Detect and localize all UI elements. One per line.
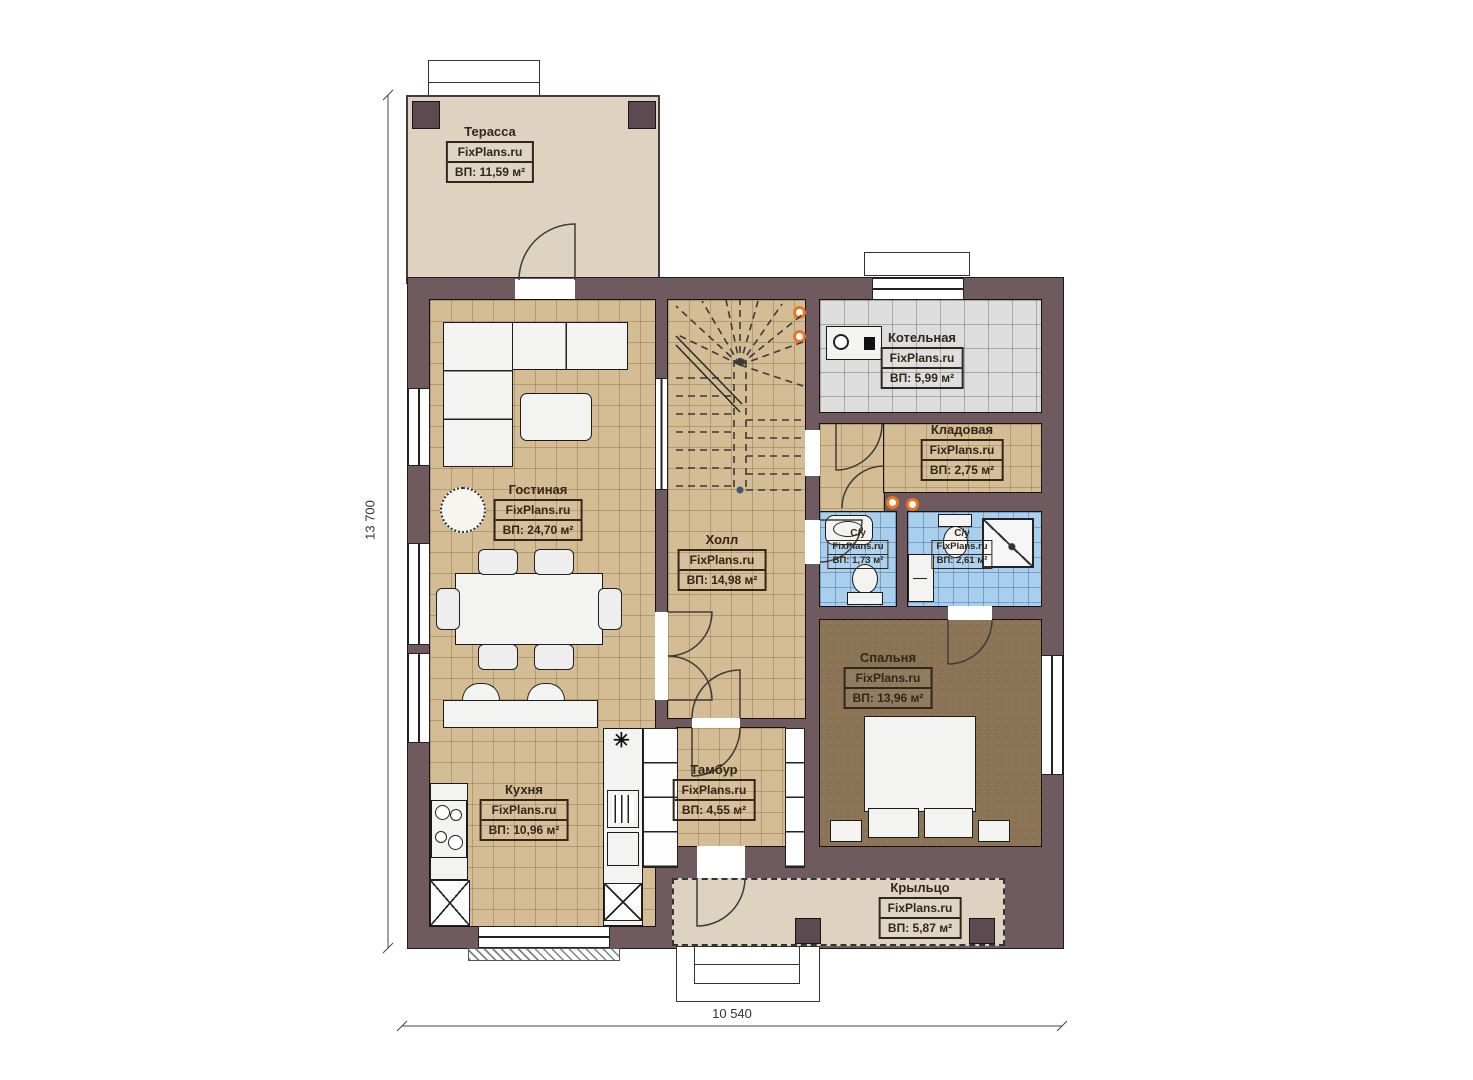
toilet-tank xyxy=(847,592,883,605)
dining-window-left xyxy=(408,543,430,645)
room-label-terrace: Терасса FixPlans.ru ВП: 11,59 м² xyxy=(446,124,534,183)
appliance-box xyxy=(607,832,639,866)
kitchen-window-sill xyxy=(468,948,620,961)
room-name: С/у xyxy=(931,528,992,539)
cooktop-symbol-icon: ✳ xyxy=(613,728,630,753)
stove-burner xyxy=(448,835,463,850)
room-area: ВП: 1,73 м² xyxy=(828,554,887,568)
room-area: ВП: 2,75 м² xyxy=(923,459,1002,479)
room-label-bedroom: Спальня FixPlans.ru ВП: 13,96 м² xyxy=(844,650,933,709)
lobby-floor xyxy=(820,424,884,512)
terrace-door-opening xyxy=(515,279,575,299)
room-label-bath2: С/у FixPlans.ru ВП: 2,61 м² xyxy=(931,528,992,569)
room-name: Гостиная xyxy=(494,482,583,497)
sofa-vertical xyxy=(443,322,513,467)
floor-plan: ✳ xyxy=(0,0,1473,1080)
chimney-vent-icon xyxy=(906,498,919,511)
room-name: С/у xyxy=(827,528,888,539)
boiler-unit xyxy=(826,326,882,360)
stove-burner xyxy=(450,809,462,821)
dining-chair xyxy=(436,588,460,630)
room-label-porch: Крыльцо FixPlans.ru ВП: 5,87 м² xyxy=(879,880,962,939)
nightstand xyxy=(830,820,862,842)
room-area: ВП: 24,70 м² xyxy=(496,519,581,539)
corner-cabinet xyxy=(430,880,470,926)
chimney-vent-icon xyxy=(793,330,806,343)
watermark: FixPlans.ru xyxy=(932,541,991,554)
watermark: FixPlans.ru xyxy=(923,441,1002,459)
plant xyxy=(440,487,486,533)
nightstand xyxy=(978,820,1010,842)
lobby-door-opening xyxy=(805,430,820,476)
porch-post xyxy=(795,918,821,944)
room-area: ВП: 4,55 м² xyxy=(675,799,754,819)
watermark: FixPlans.ru xyxy=(846,669,931,687)
water-heater xyxy=(908,554,934,602)
bath1-door-opening xyxy=(805,520,820,564)
dining-table xyxy=(455,573,603,645)
bed xyxy=(864,716,976,812)
double-door-opening xyxy=(655,612,668,700)
living-hall-opening xyxy=(655,378,668,490)
dining-chair xyxy=(534,644,574,670)
room-name: Спальня xyxy=(844,650,933,665)
island-counter xyxy=(443,700,598,728)
boiler-window-sill xyxy=(864,252,970,276)
pillow xyxy=(868,808,919,838)
boiler-window xyxy=(872,278,964,300)
porch-step xyxy=(694,946,800,965)
room-area: ВП: 11,59 м² xyxy=(448,161,532,181)
room-label-boiler: Котельная FixPlans.ru ВП: 5,99 м² xyxy=(881,330,964,389)
room-label-vestibule: Тамбур FixPlans.ru ВП: 4,55 м² xyxy=(673,762,756,821)
porch-post xyxy=(969,918,995,944)
watermark: FixPlans.ru xyxy=(680,551,765,569)
room-area: ВП: 13,96 м² xyxy=(846,687,931,707)
watermark: FixPlans.ru xyxy=(496,501,581,519)
room-name: Холл xyxy=(678,532,767,547)
oven xyxy=(607,790,639,828)
dining-chair xyxy=(478,644,518,670)
living-window-left xyxy=(408,388,430,466)
fridge xyxy=(604,883,642,921)
watermark: FixPlans.ru xyxy=(828,541,887,554)
pillow xyxy=(924,808,973,838)
entrance-door-opening xyxy=(697,846,745,878)
watermark: FixPlans.ru xyxy=(675,781,754,799)
coffee-table xyxy=(520,393,592,441)
room-area: ВП: 5,99 м² xyxy=(883,367,962,387)
room-name: Кухня xyxy=(480,782,569,797)
watermark: FixPlans.ru xyxy=(883,349,962,367)
boiler-panel xyxy=(864,337,875,350)
dining-chair xyxy=(534,549,574,575)
terrace-post xyxy=(628,101,656,129)
vestibule-door-opening xyxy=(692,718,740,728)
height-dimension: 13 700 xyxy=(363,500,378,540)
dining-chair xyxy=(478,549,518,575)
chimney-vent-icon xyxy=(793,306,806,319)
dining-chair xyxy=(598,588,622,630)
terrace-post xyxy=(412,101,440,129)
chimney-outline xyxy=(428,60,540,98)
stove-burner xyxy=(435,831,447,843)
room-label-kitchen: Кухня FixPlans.ru ВП: 10,96 м² xyxy=(480,782,569,841)
boiler-dial xyxy=(833,334,849,350)
bedroom-window-right xyxy=(1041,655,1063,775)
watermark: FixPlans.ru xyxy=(482,801,567,819)
room-name: Котельная xyxy=(881,330,964,345)
water-heater-line xyxy=(913,578,927,579)
stove-burner xyxy=(435,805,450,820)
room-name: Кладовая xyxy=(921,422,1004,437)
living-window-left-lower xyxy=(408,653,430,743)
chimney-divider xyxy=(429,82,539,83)
width-dimension: 10 540 xyxy=(712,1006,752,1021)
chimney-vent-icon xyxy=(886,496,899,509)
room-label-storage: Кладовая FixPlans.ru ВП: 2,75 м² xyxy=(921,422,1004,481)
closet-right xyxy=(785,728,805,868)
room-name: Тамбур xyxy=(673,762,756,777)
stove xyxy=(431,800,467,858)
bedroom-door-opening xyxy=(948,606,992,620)
kitchen-window xyxy=(478,926,610,948)
room-label-living: Гостиная FixPlans.ru ВП: 24,70 м² xyxy=(494,482,583,541)
toilet xyxy=(846,564,884,606)
room-name: Терасса xyxy=(446,124,534,139)
watermark: FixPlans.ru xyxy=(448,143,532,161)
room-area: ВП: 10,96 м² xyxy=(482,819,567,839)
room-area: ВП: 2,61 м² xyxy=(932,554,991,568)
watermark: FixPlans.ru xyxy=(881,899,960,917)
room-label-bath1: С/у FixPlans.ru ВП: 1,73 м² xyxy=(827,528,888,569)
room-label-hall: Холл FixPlans.ru ВП: 14,98 м² xyxy=(678,532,767,591)
hall-floor xyxy=(668,300,805,718)
room-name: Крыльцо xyxy=(879,880,962,895)
room-area: ВП: 14,98 м² xyxy=(680,569,765,589)
room-area: ВП: 5,87 м² xyxy=(881,917,960,937)
